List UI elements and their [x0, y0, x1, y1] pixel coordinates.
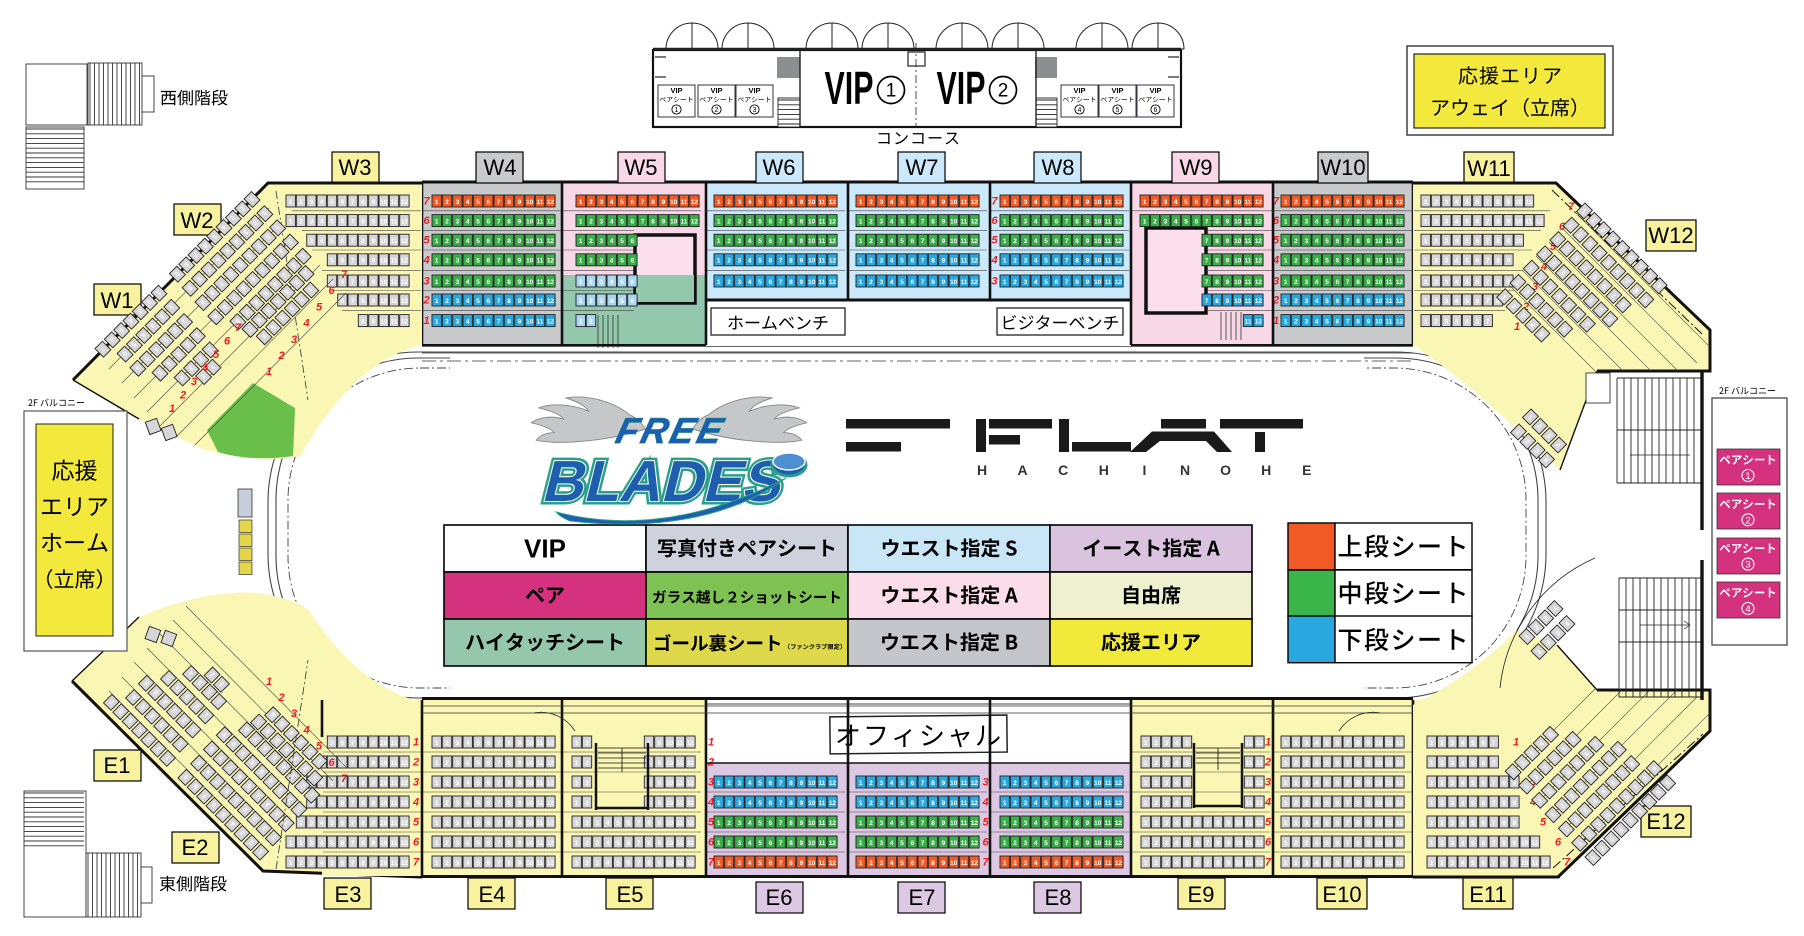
- svg-text:5: 5: [620, 279, 624, 286]
- svg-text:7: 7: [1346, 820, 1350, 827]
- svg-text:6: 6: [769, 840, 773, 847]
- svg-text:9: 9: [800, 218, 804, 225]
- svg-text:1: 1: [1003, 218, 1007, 225]
- svg-text:2: 2: [412, 757, 419, 769]
- svg-text:10: 10: [670, 199, 678, 206]
- svg-text:5: 5: [1184, 199, 1188, 206]
- svg-text:3: 3: [1024, 820, 1028, 827]
- svg-text:6: 6: [1336, 279, 1340, 286]
- svg-text:4: 4: [466, 318, 470, 325]
- svg-text:4: 4: [1745, 604, 1750, 615]
- svg-text:8: 8: [1496, 258, 1500, 265]
- svg-text:9: 9: [372, 279, 376, 286]
- svg-text:10: 10: [950, 780, 958, 787]
- svg-text:2: 2: [585, 860, 589, 867]
- svg-text:8: 8: [931, 258, 935, 265]
- svg-text:6: 6: [627, 820, 631, 827]
- svg-text:5: 5: [1471, 820, 1475, 827]
- svg-text:2: 2: [1294, 760, 1298, 767]
- svg-text:7: 7: [1492, 740, 1496, 747]
- svg-text:9: 9: [800, 238, 804, 245]
- svg-text:9: 9: [1513, 860, 1517, 867]
- svg-text:12: 12: [1396, 840, 1404, 847]
- svg-text:9: 9: [1367, 238, 1371, 245]
- svg-text:10: 10: [950, 820, 958, 827]
- svg-text:8: 8: [931, 780, 935, 787]
- svg-text:3: 3: [738, 860, 742, 867]
- svg-text:10: 10: [1375, 318, 1383, 325]
- svg-text:9: 9: [1367, 740, 1371, 747]
- svg-text:9: 9: [1086, 199, 1090, 206]
- svg-text:8: 8: [361, 840, 365, 847]
- svg-text:W7: W7: [906, 155, 939, 180]
- svg-text:1: 1: [579, 199, 583, 206]
- svg-text:7: 7: [1346, 780, 1350, 787]
- svg-text:1: 1: [1284, 820, 1288, 827]
- svg-text:10: 10: [380, 218, 388, 225]
- svg-text:8: 8: [789, 238, 793, 245]
- svg-text:10: 10: [666, 780, 674, 787]
- svg-text:3: 3: [291, 334, 297, 346]
- svg-text:7: 7: [1492, 860, 1496, 867]
- svg-text:11: 11: [391, 318, 398, 325]
- svg-text:4: 4: [610, 258, 614, 265]
- svg-text:2: 2: [1153, 218, 1157, 225]
- svg-text:8: 8: [651, 199, 655, 206]
- svg-text:7: 7: [351, 298, 355, 305]
- svg-text:11: 11: [1386, 238, 1393, 245]
- svg-text:2: 2: [1440, 860, 1444, 867]
- svg-text:10: 10: [526, 318, 534, 325]
- svg-text:8: 8: [647, 820, 651, 827]
- svg-text:2: 2: [1294, 218, 1298, 225]
- svg-text:1: 1: [1424, 318, 1428, 325]
- svg-text:11: 11: [1105, 279, 1112, 286]
- svg-text:12: 12: [1255, 318, 1263, 325]
- svg-text:5: 5: [1471, 840, 1475, 847]
- svg-text:10: 10: [1094, 780, 1102, 787]
- svg-text:11: 11: [1245, 279, 1252, 286]
- svg-text:2: 2: [1294, 800, 1298, 807]
- svg-text:VIP: VIP: [1149, 86, 1161, 95]
- svg-text:12: 12: [1115, 840, 1123, 847]
- svg-text:1: 1: [435, 800, 439, 807]
- svg-text:12: 12: [547, 800, 555, 807]
- svg-text:2: 2: [585, 740, 589, 747]
- svg-text:7: 7: [779, 279, 783, 286]
- svg-text:8: 8: [361, 760, 365, 767]
- svg-text:O: O: [1220, 462, 1231, 478]
- svg-text:5: 5: [1325, 760, 1329, 767]
- svg-text:9: 9: [1086, 218, 1090, 225]
- svg-text:7: 7: [1205, 298, 1209, 305]
- svg-text:1: 1: [717, 218, 721, 225]
- svg-text:2: 2: [1154, 780, 1158, 787]
- svg-text:H: H: [977, 462, 987, 478]
- svg-text:12: 12: [971, 238, 979, 245]
- svg-text:7: 7: [351, 760, 355, 767]
- svg-text:7: 7: [351, 800, 355, 807]
- svg-text:7: 7: [1205, 258, 1209, 265]
- svg-text:5: 5: [900, 279, 904, 286]
- svg-text:6: 6: [341, 840, 345, 847]
- svg-text:8: 8: [1356, 318, 1360, 325]
- svg-text:4: 4: [1315, 279, 1319, 286]
- svg-text:3: 3: [1451, 820, 1455, 827]
- svg-text:12: 12: [687, 820, 695, 827]
- svg-text:3: 3: [600, 218, 604, 225]
- svg-text:11: 11: [537, 820, 544, 827]
- svg-text:VIP: VIP: [937, 64, 986, 115]
- svg-text:5: 5: [1185, 860, 1189, 867]
- svg-text:3: 3: [1305, 258, 1309, 265]
- svg-text:12: 12: [1255, 218, 1263, 225]
- svg-text:2: 2: [1294, 318, 1298, 325]
- svg-text:7: 7: [991, 196, 998, 208]
- svg-text:8: 8: [1075, 258, 1079, 265]
- svg-text:9: 9: [1227, 860, 1231, 867]
- svg-text:5: 5: [1465, 258, 1469, 265]
- svg-text:12: 12: [547, 760, 555, 767]
- svg-text:10: 10: [1094, 800, 1102, 807]
- svg-text:12: 12: [1396, 298, 1404, 305]
- svg-text:9: 9: [1367, 780, 1371, 787]
- svg-text:6: 6: [487, 218, 491, 225]
- svg-text:6: 6: [341, 258, 345, 265]
- svg-text:8: 8: [507, 840, 511, 847]
- svg-text:5: 5: [316, 741, 323, 753]
- svg-text:3: 3: [738, 238, 742, 245]
- svg-text:8: 8: [789, 860, 793, 867]
- svg-text:5: 5: [1325, 820, 1329, 827]
- svg-text:1: 1: [579, 279, 583, 286]
- svg-text:2: 2: [445, 238, 449, 245]
- svg-text:10: 10: [526, 800, 534, 807]
- svg-text:2: 2: [445, 218, 449, 225]
- svg-text:12: 12: [829, 258, 837, 265]
- svg-text:VIP: VIP: [524, 534, 566, 564]
- svg-text:11: 11: [1386, 760, 1393, 767]
- svg-text:6: 6: [991, 215, 998, 227]
- svg-text:11: 11: [819, 258, 826, 265]
- svg-text:12: 12: [687, 800, 695, 807]
- svg-text:12: 12: [401, 740, 409, 747]
- svg-text:2: 2: [869, 860, 873, 867]
- svg-text:9: 9: [658, 860, 662, 867]
- svg-text:12: 12: [687, 840, 695, 847]
- svg-text:12: 12: [971, 840, 979, 847]
- svg-text:3: 3: [1445, 218, 1449, 225]
- svg-text:4: 4: [1455, 279, 1459, 286]
- svg-text:2: 2: [727, 800, 731, 807]
- svg-text:2: 2: [277, 692, 284, 704]
- svg-text:9: 9: [942, 238, 946, 245]
- svg-text:7: 7: [351, 820, 355, 827]
- svg-text:1: 1: [1513, 737, 1519, 749]
- svg-text:6: 6: [1336, 740, 1340, 747]
- svg-text:6: 6: [1195, 199, 1199, 206]
- svg-text:9: 9: [518, 199, 522, 206]
- svg-text:3: 3: [1165, 840, 1169, 847]
- svg-text:6: 6: [631, 258, 635, 265]
- svg-text:6: 6: [911, 199, 915, 206]
- svg-text:3: 3: [738, 800, 742, 807]
- svg-text:7: 7: [1346, 760, 1350, 767]
- svg-text:8: 8: [789, 199, 793, 206]
- svg-text:1: 1: [859, 279, 863, 286]
- svg-text:5: 5: [213, 349, 220, 361]
- svg-text:5: 5: [476, 800, 480, 807]
- svg-text:11: 11: [677, 820, 684, 827]
- svg-text:3: 3: [310, 840, 314, 847]
- svg-text:5: 5: [1325, 318, 1329, 325]
- svg-text:11: 11: [1105, 199, 1112, 206]
- svg-text:5: 5: [1325, 840, 1329, 847]
- svg-text:3: 3: [880, 199, 884, 206]
- svg-text:8: 8: [789, 218, 793, 225]
- svg-text:11: 11: [681, 199, 688, 206]
- svg-text:11: 11: [1245, 318, 1252, 325]
- svg-text:8: 8: [507, 800, 511, 807]
- svg-text:8: 8: [361, 860, 365, 867]
- svg-text:5: 5: [1465, 318, 1469, 325]
- svg-text:4: 4: [1034, 820, 1038, 827]
- svg-text:9: 9: [372, 760, 376, 767]
- svg-text:8: 8: [789, 820, 793, 827]
- svg-text:10: 10: [1515, 238, 1523, 245]
- svg-text:6: 6: [1482, 860, 1486, 867]
- svg-text:1: 1: [859, 258, 863, 265]
- svg-text:5: 5: [413, 817, 420, 829]
- svg-text:4: 4: [890, 820, 894, 827]
- svg-text:4: 4: [1174, 199, 1178, 206]
- svg-text:2: 2: [445, 860, 449, 867]
- svg-text:1: 1: [435, 860, 439, 867]
- svg-text:E2: E2: [182, 835, 209, 860]
- svg-text:8: 8: [1075, 800, 1079, 807]
- svg-text:12: 12: [687, 860, 695, 867]
- svg-text:2: 2: [1745, 515, 1750, 526]
- svg-text:1: 1: [579, 298, 583, 305]
- svg-text:10: 10: [1375, 238, 1383, 245]
- svg-text:12: 12: [1396, 780, 1404, 787]
- svg-text:11: 11: [1386, 840, 1393, 847]
- svg-text:5: 5: [1185, 740, 1189, 747]
- svg-text:5: 5: [476, 820, 480, 827]
- svg-text:4: 4: [606, 860, 610, 867]
- svg-text:10: 10: [380, 800, 388, 807]
- svg-text:10: 10: [526, 258, 534, 265]
- svg-text:6: 6: [1336, 780, 1340, 787]
- svg-text:8: 8: [1496, 279, 1500, 286]
- svg-text:4: 4: [320, 800, 324, 807]
- svg-text:8: 8: [1356, 840, 1360, 847]
- svg-text:12: 12: [547, 258, 555, 265]
- svg-text:2: 2: [869, 238, 873, 245]
- svg-text:5: 5: [620, 218, 624, 225]
- svg-text:4: 4: [1175, 740, 1179, 747]
- svg-text:12: 12: [1536, 218, 1544, 225]
- svg-text:12: 12: [547, 318, 555, 325]
- svg-text:10: 10: [526, 820, 534, 827]
- svg-text:2: 2: [445, 780, 449, 787]
- svg-text:11: 11: [1105, 860, 1112, 867]
- svg-text:9: 9: [518, 740, 522, 747]
- svg-text:6: 6: [328, 285, 335, 297]
- svg-text:8: 8: [507, 820, 511, 827]
- svg-text:11: 11: [819, 279, 826, 286]
- svg-text:5: 5: [476, 258, 480, 265]
- svg-text:4: 4: [1461, 760, 1465, 767]
- svg-text:3: 3: [456, 760, 460, 767]
- svg-text:9: 9: [658, 760, 662, 767]
- svg-text:12: 12: [401, 760, 409, 767]
- svg-text:5: 5: [330, 740, 334, 747]
- svg-text:4: 4: [1315, 780, 1319, 787]
- svg-text:3: 3: [600, 238, 604, 245]
- svg-text:6: 6: [631, 218, 635, 225]
- svg-text:10: 10: [1094, 258, 1102, 265]
- svg-text:11: 11: [1386, 780, 1393, 787]
- svg-text:3: 3: [880, 860, 884, 867]
- svg-text:11: 11: [1245, 298, 1252, 305]
- svg-text:2: 2: [179, 390, 186, 402]
- svg-text:4: 4: [1175, 820, 1179, 827]
- svg-text:9: 9: [1513, 800, 1517, 807]
- svg-text:11: 11: [391, 820, 398, 827]
- svg-text:8: 8: [1215, 218, 1219, 225]
- svg-text:10: 10: [808, 840, 816, 847]
- svg-text:11: 11: [1386, 258, 1393, 265]
- svg-text:3: 3: [456, 800, 460, 807]
- svg-text:12: 12: [1255, 258, 1263, 265]
- svg-text:8: 8: [361, 318, 365, 325]
- svg-text:12: 12: [1256, 800, 1264, 807]
- svg-text:4: 4: [1315, 199, 1319, 206]
- svg-text:10: 10: [380, 258, 388, 265]
- svg-text:1: 1: [717, 860, 721, 867]
- svg-text:4: 4: [610, 199, 614, 206]
- svg-text:3: 3: [708, 777, 714, 789]
- svg-text:C: C: [1058, 462, 1068, 478]
- svg-text:9: 9: [800, 800, 804, 807]
- svg-text:5: 5: [476, 760, 480, 767]
- svg-text:10: 10: [1094, 820, 1102, 827]
- svg-text:2: 2: [1294, 258, 1298, 265]
- svg-text:12: 12: [1115, 820, 1123, 827]
- svg-text:5: 5: [620, 298, 624, 305]
- svg-text:3: 3: [456, 279, 460, 286]
- svg-text:H: H: [1099, 462, 1109, 478]
- svg-text:4: 4: [1315, 238, 1319, 245]
- svg-text:2: 2: [589, 298, 593, 305]
- svg-text:10: 10: [1235, 840, 1243, 847]
- svg-text:7: 7: [235, 322, 242, 334]
- svg-text:11: 11: [819, 820, 826, 827]
- svg-text:2: 2: [299, 218, 303, 225]
- svg-text:4: 4: [890, 199, 894, 206]
- svg-text:4: 4: [1315, 218, 1319, 225]
- svg-text:1: 1: [1143, 199, 1147, 206]
- svg-text:8: 8: [361, 258, 365, 265]
- svg-text:8: 8: [1356, 740, 1360, 747]
- svg-text:1: 1: [1745, 471, 1750, 482]
- svg-text:12: 12: [547, 860, 555, 867]
- svg-text:7: 7: [779, 780, 783, 787]
- svg-text:10: 10: [950, 840, 958, 847]
- svg-text:4: 4: [466, 800, 470, 807]
- svg-text:4: 4: [748, 199, 752, 206]
- svg-text:9: 9: [1086, 860, 1090, 867]
- svg-text:6: 6: [1336, 199, 1340, 206]
- svg-text:7: 7: [413, 857, 420, 869]
- svg-text:10: 10: [380, 279, 388, 286]
- svg-text:7: 7: [497, 860, 501, 867]
- svg-text:8: 8: [1075, 820, 1079, 827]
- svg-text:9: 9: [942, 860, 946, 867]
- svg-text:2: 2: [445, 740, 449, 747]
- svg-text:10: 10: [666, 800, 674, 807]
- svg-text:7: 7: [1065, 820, 1069, 827]
- svg-text:3: 3: [191, 376, 197, 388]
- svg-text:10: 10: [950, 218, 958, 225]
- svg-text:5: 5: [423, 235, 430, 247]
- svg-text:1: 1: [435, 279, 439, 286]
- svg-text:1: 1: [1003, 279, 1007, 286]
- svg-text:11: 11: [819, 840, 826, 847]
- svg-text:12: 12: [1115, 800, 1123, 807]
- svg-text:7: 7: [497, 740, 501, 747]
- svg-text:2: 2: [445, 820, 449, 827]
- svg-text:10: 10: [1375, 780, 1383, 787]
- svg-text:2: 2: [1154, 760, 1158, 767]
- svg-text:3: 3: [456, 820, 460, 827]
- svg-text:6: 6: [911, 258, 915, 265]
- svg-text:4: 4: [707, 797, 714, 809]
- svg-text:5: 5: [476, 740, 480, 747]
- svg-text:1: 1: [859, 780, 863, 787]
- svg-text:9: 9: [372, 199, 376, 206]
- svg-text:6: 6: [1336, 238, 1340, 245]
- svg-text:11: 11: [391, 840, 398, 847]
- svg-text:12: 12: [971, 279, 979, 286]
- svg-text:2: 2: [727, 199, 731, 206]
- svg-text:7: 7: [779, 840, 783, 847]
- svg-text:7: 7: [351, 279, 355, 286]
- svg-text:1: 1: [717, 279, 721, 286]
- svg-text:12: 12: [401, 860, 409, 867]
- svg-text:2: 2: [1440, 740, 1444, 747]
- svg-text:2: 2: [998, 81, 1009, 102]
- svg-text:3: 3: [310, 820, 314, 827]
- svg-text:4: 4: [201, 363, 208, 375]
- svg-text:4: 4: [1175, 860, 1179, 867]
- svg-text:8: 8: [789, 279, 793, 286]
- svg-text:6: 6: [487, 800, 491, 807]
- svg-text:2: 2: [1013, 238, 1017, 245]
- svg-text:5: 5: [758, 820, 762, 827]
- svg-text:10: 10: [808, 238, 816, 245]
- svg-text:6: 6: [1055, 800, 1059, 807]
- svg-text:1: 1: [266, 676, 272, 688]
- svg-text:2: 2: [585, 820, 589, 827]
- svg-text:6: 6: [1336, 258, 1340, 265]
- svg-text:11: 11: [391, 238, 398, 245]
- svg-text:2: 2: [445, 760, 449, 767]
- svg-text:4: 4: [1315, 318, 1319, 325]
- svg-text:7: 7: [1486, 258, 1490, 265]
- svg-text:10: 10: [808, 218, 816, 225]
